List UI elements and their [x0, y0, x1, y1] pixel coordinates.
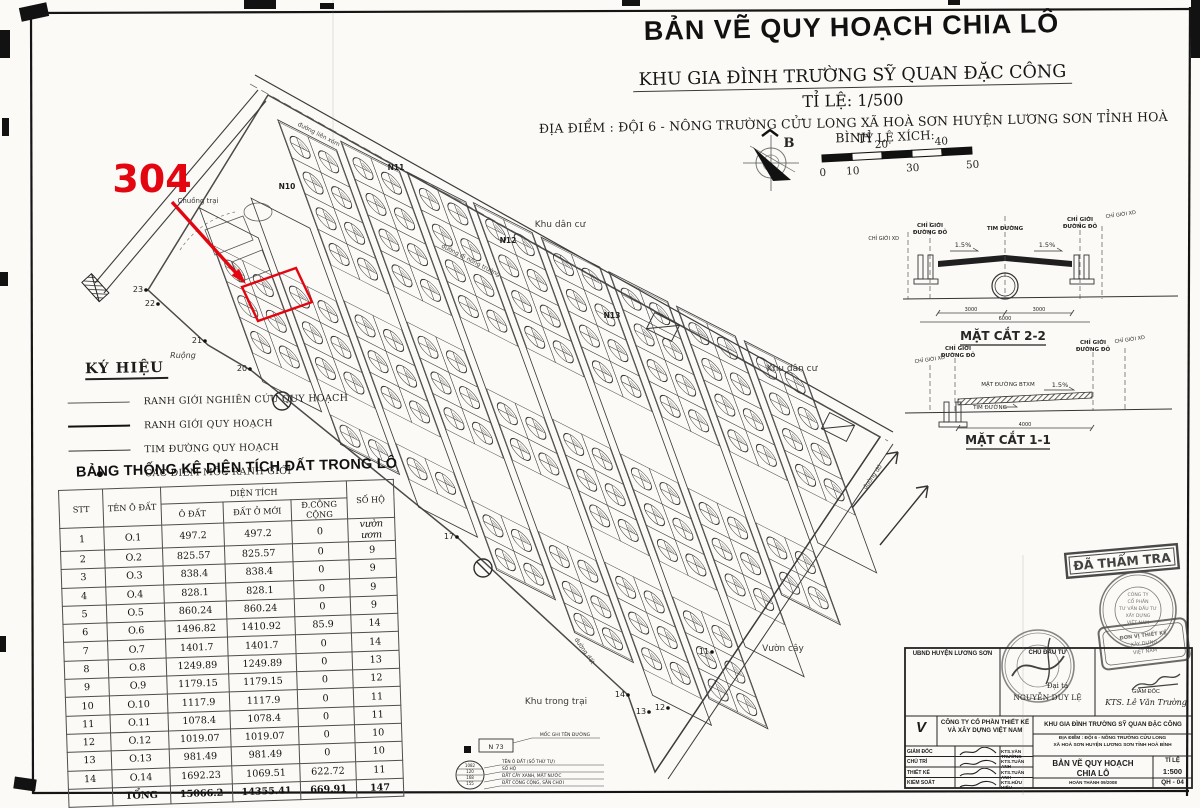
table-cell — [68, 788, 113, 808]
legend-item-label: TIM ĐƯỜNG QUY HOẠCH — [144, 441, 279, 454]
boundary-point-number: 21 — [192, 336, 202, 345]
drawing-element — [724, 402, 729, 408]
table-cell: 1401.7 — [227, 635, 296, 656]
table-cell: 981.49 — [231, 745, 300, 766]
boundary-point — [626, 693, 630, 697]
drawing-element — [505, 556, 510, 562]
drawing-element — [818, 594, 823, 600]
table-cell: 1078.4 — [230, 708, 299, 729]
table-cell: 0 — [296, 652, 353, 672]
drawing-element — [572, 589, 577, 595]
ti-le-label: TỈ LỆ — [1153, 758, 1192, 764]
table-cell: O.10 — [109, 694, 168, 714]
table-cell: 0 — [297, 688, 354, 708]
drawing-element — [339, 251, 344, 257]
drawing-element — [441, 380, 446, 386]
boundary-point-number: 14 — [615, 690, 625, 699]
table-cell: 1496.82 — [165, 619, 228, 639]
east-road — [655, 437, 880, 772]
drawing-element — [630, 383, 635, 389]
drawing-element — [735, 582, 740, 588]
table-cell: 13 — [352, 650, 400, 670]
table-cell: O.5 — [106, 603, 165, 623]
table-cell: 825.57 — [162, 546, 225, 566]
drawing-element — [300, 144, 305, 150]
map-label: TIM ĐƯỜNG — [972, 404, 1007, 411]
drawing-element — [406, 373, 411, 379]
drawing-element — [445, 480, 450, 486]
map-label: TIM ĐƯỜNG — [987, 225, 1024, 232]
scale-tick: 50 — [966, 159, 980, 172]
role-label: CHỦ TRÌ — [907, 759, 955, 765]
table-cell: 0 — [293, 560, 350, 580]
parcel-symbol-legend: N 73MỐC GHI TÊN ĐƯỜNG1082120168155TÊN Ô … — [456, 730, 604, 789]
drawing-element — [341, 194, 346, 200]
map-label: 3000 — [965, 307, 978, 313]
map-label: CHỈ GIỚI XD — [1114, 333, 1146, 345]
drawing-element — [958, 392, 1092, 405]
block-label: N10 — [279, 182, 296, 191]
investor-name: NGUYỄN DUY LỆ — [1000, 693, 1095, 702]
drawing-element — [670, 403, 675, 409]
table-cell: 5 — [62, 605, 107, 625]
director-sign-name: KTS. Lê Văn Trường — [1098, 698, 1194, 707]
drawing-element — [709, 510, 714, 516]
drawing-element — [654, 511, 659, 517]
drawing-element — [393, 337, 398, 343]
table-cell: O.8 — [108, 658, 167, 678]
boundary-point-number: 23 — [133, 285, 143, 294]
drawing-element — [521, 537, 526, 543]
drawing-element — [903, 296, 1178, 299]
drawing-element — [482, 430, 487, 436]
street-mark-desc: MỐC GHI TÊN ĐƯỜNG — [540, 730, 591, 738]
drawing-element — [680, 670, 685, 676]
scan-artifact — [948, 0, 960, 5]
col-so-ho: SỐ HỘ — [346, 479, 394, 519]
table-cell: 0 — [292, 519, 349, 544]
boundary-point-number: 12 — [655, 703, 665, 712]
symbol-desc: TÊN Ô ĐẤT (SỐ THỨ TỰ) — [501, 757, 555, 765]
symbol-value: 120 — [466, 769, 474, 774]
role-label: THIẾT KẾ — [907, 770, 955, 776]
ti-le-value: 1:500 — [1153, 767, 1192, 776]
table-cell: 12 — [67, 733, 112, 753]
table-cell: 497.2 — [162, 523, 225, 548]
drawing-element — [821, 451, 826, 457]
drawing-element — [417, 251, 422, 257]
table-cell: 0 — [294, 597, 351, 617]
drawing-element — [520, 446, 525, 452]
drawing-element — [763, 596, 768, 602]
company-name: CÔNG TY CỔ PHẦN THIẾT KẾ VÀ XÂY DỰNG VIỆ… — [939, 719, 1031, 735]
drawing-element — [805, 559, 810, 565]
drawing-element — [327, 308, 332, 314]
drawing-element — [602, 369, 607, 375]
drawing-element — [313, 180, 318, 186]
drawing-element — [363, 165, 368, 171]
drawing-element — [711, 366, 716, 372]
drawing-element — [753, 416, 758, 422]
drawing-element — [534, 334, 539, 340]
ubnd-label: UBND HUYỆN LƯƠNG SƠN — [905, 651, 1000, 657]
drawing-element — [260, 339, 265, 345]
role-label: GIÁM ĐỐC — [907, 749, 955, 755]
giam-doc-right-label: GIÁM ĐỐC — [1100, 689, 1192, 695]
drawing-element — [615, 491, 620, 497]
drawing-element — [533, 571, 538, 577]
drawing-element — [795, 379, 800, 385]
drawing-element — [493, 523, 498, 529]
table-cell: O.11 — [110, 713, 169, 733]
table-cell: 85.9 — [295, 615, 352, 635]
section-title: MẶT CẮT 2-2 — [960, 327, 1046, 343]
drawing-element — [391, 394, 396, 400]
drawing-element — [602, 456, 607, 462]
drawing-element — [389, 237, 394, 243]
drawing-element — [496, 318, 501, 324]
table-cell: 11 — [354, 705, 402, 725]
drawing-element — [641, 476, 646, 482]
role-signature — [957, 768, 999, 778]
table-cell: vườn ươm — [348, 517, 396, 542]
table-cell: 14 — [351, 613, 399, 633]
drawing-element — [483, 282, 488, 288]
drawing-element — [766, 452, 771, 458]
drawing-element — [455, 268, 460, 274]
drawing-element — [563, 349, 568, 355]
drawing-element — [535, 425, 540, 431]
block-label: N11 — [388, 163, 405, 172]
drawing-element — [391, 180, 396, 186]
drawing-element — [576, 297, 581, 303]
boundary-point — [647, 710, 651, 714]
drawing-element — [326, 215, 331, 221]
drawing-element — [589, 333, 594, 339]
table-cell: 1 — [60, 527, 105, 551]
table-cell: 1692.23 — [170, 765, 233, 785]
role-name: KTS.TUẤN ANH — [1001, 759, 1033, 769]
director-signature — [1132, 674, 1180, 690]
table-cell: 838.4 — [163, 564, 226, 584]
col-ten: TÊN Ô ĐẤT — [102, 487, 161, 527]
area-label: Khu trong trại — [525, 697, 587, 707]
col-dat-o-moi: ĐẤT Ở MỚI — [223, 500, 292, 523]
table-cell: 15066.2 — [170, 784, 233, 804]
map-label: ĐƯỜNG ĐỎ — [1076, 345, 1111, 353]
drawing-element — [417, 466, 422, 472]
drawing-element — [746, 701, 751, 707]
drawing-element — [805, 472, 810, 478]
table-cell: 622.72 — [300, 761, 357, 781]
scan-artifact — [0, 636, 6, 652]
drawing-element — [737, 525, 742, 531]
drawing-element — [905, 409, 1172, 413]
drawing-element — [750, 560, 755, 566]
drawing-element — [693, 619, 698, 625]
road-label: đường đất — [573, 637, 597, 667]
table-cell: 0 — [297, 670, 354, 690]
drawing-element — [682, 526, 687, 532]
table-cell: 1401.7 — [166, 637, 229, 657]
drawing-element — [299, 294, 304, 300]
drawing-element — [834, 487, 839, 493]
drawing-element — [469, 394, 474, 400]
block-label: N12 — [500, 236, 517, 245]
drawing-element — [456, 359, 461, 365]
drawing-element — [698, 418, 703, 424]
table-cell: 1019.07 — [231, 727, 300, 748]
table-cell: 497.2 — [224, 521, 293, 546]
drawing-element — [367, 266, 372, 272]
drawing-element — [808, 415, 813, 421]
drawing-element — [454, 415, 459, 421]
table-cell: 0 — [298, 706, 355, 726]
table-cell: 0 — [292, 542, 349, 562]
drawing-element — [600, 604, 605, 610]
scan-artifact — [0, 30, 10, 58]
boundary-point — [666, 706, 670, 710]
map-label: 1.5% — [1039, 241, 1056, 249]
drawing-element — [376, 201, 381, 207]
drawing-element — [657, 367, 662, 373]
compass-needle — [753, 147, 791, 181]
table-cell: 10 — [65, 696, 110, 716]
col-cong-cong: Đ.CÔNG CỘNG — [291, 498, 348, 521]
boundary-point-number: 13 — [636, 707, 646, 716]
table-cell: 1069.51 — [232, 763, 301, 784]
drawing-element — [354, 230, 359, 236]
drawing-element — [628, 527, 633, 533]
drawing-element — [928, 255, 933, 279]
drawing-element — [644, 332, 649, 338]
area-label: Khu dân cư — [767, 364, 819, 374]
table-cell: O.1 — [104, 525, 163, 550]
map-label: CHỈ GIỚI — [1080, 338, 1106, 346]
role-name: KTS.TUẤN ANH — [1001, 770, 1033, 780]
drawing-element — [524, 241, 529, 247]
table-cell: 14 — [351, 632, 399, 652]
annotation-plot-number: 304 — [112, 157, 191, 201]
table-cell: O.2 — [105, 548, 164, 568]
drawing-element — [672, 346, 677, 352]
boundary-point — [144, 288, 148, 292]
map-label: ĐƯỜNG ĐỎ — [1063, 222, 1098, 230]
drawing-element — [464, 746, 471, 753]
drawing-element — [882, 150, 912, 159]
map-label: 3000 — [1033, 307, 1046, 313]
drawing-element — [402, 273, 407, 279]
drawing-element — [779, 401, 784, 407]
table-cell: O.9 — [109, 676, 168, 696]
table-cell: 838.4 — [225, 562, 294, 583]
table-cell: O.13 — [111, 749, 170, 769]
table-cell: 10 — [354, 723, 402, 743]
culvert-symbol — [82, 274, 109, 302]
table-cell: 14355.41 — [232, 781, 301, 802]
table-cell: 0 — [299, 743, 356, 763]
drawing-element — [638, 620, 643, 626]
table-cell: O.3 — [105, 566, 164, 586]
drawing-element — [573, 441, 578, 447]
boundary-point-number: 17 — [444, 532, 454, 541]
role-signature — [957, 758, 999, 768]
col-stt: STT — [59, 489, 104, 528]
dai-ta-label: Đại tá — [1010, 682, 1105, 690]
fold-line — [332, 0, 334, 150]
drawing-element — [587, 568, 592, 574]
table-cell: 1410.92 — [227, 617, 296, 638]
symbol-value: 1082 — [465, 763, 476, 768]
section-2-2: CHỈ GIỚIĐƯỜNG ĐỎTIM ĐƯỜNGCHỈ GIỚIĐƯỜNG Đ… — [868, 208, 1178, 345]
scan-artifact — [320, 3, 334, 9]
map-label: 1.5% — [1052, 381, 1069, 389]
legend-heading: KÝ HIỆU — [85, 359, 168, 380]
drawing-element — [617, 347, 622, 353]
table-cell: 9 — [350, 595, 398, 615]
sheet-number: QH - 04 — [1153, 779, 1192, 786]
dia-diem-line2: XÃ HOÀ SƠN HUYỆN LƯƠNG SƠN TỈNH HOÀ BÌNH — [1033, 743, 1192, 748]
drawing-element — [1084, 255, 1089, 279]
drawing-element — [685, 382, 690, 388]
table-cell: 8 — [64, 660, 109, 680]
map-label: 1.5% — [955, 241, 972, 249]
sheet-frame — [1187, 7, 1190, 796]
table-cell: 1249.89 — [228, 653, 297, 674]
table-cell: 1249.89 — [166, 656, 229, 676]
section-1-1: CHỈ GIỚI XDCHỈ GIỚIĐƯỜNG ĐỎCHỈ GIỚIĐƯỜNG… — [905, 333, 1172, 449]
table-cell: 1078.4 — [168, 711, 231, 731]
scan-artifact — [622, 0, 640, 6]
drawing-element — [822, 153, 852, 162]
drawing-element — [737, 438, 742, 444]
table-cell: O.6 — [107, 621, 166, 641]
boundary-point — [156, 302, 160, 306]
drawing-element — [470, 246, 475, 252]
drawing-element — [429, 196, 434, 202]
round-stamp-text: CỔ PHẦN — [1127, 597, 1148, 605]
round-stamp-text: XÂY DỰNG — [1126, 612, 1151, 619]
boundary-point — [203, 339, 207, 343]
table-cell: 9 — [350, 577, 398, 597]
completed-label: HOÀN THÀNH 09/2008 — [1033, 780, 1153, 785]
table-cell: 11 — [356, 760, 404, 780]
hatch-marker — [646, 313, 679, 342]
drawing-element — [667, 547, 672, 553]
drawing-element — [378, 358, 383, 364]
drawing-element — [263, 282, 268, 288]
legend-item-label: RANH GIỚI QUY HOẠCH — [144, 418, 273, 431]
drawing-element — [669, 490, 674, 496]
verified-stamp: ĐÃ THẨM TRA — [1065, 544, 1179, 578]
scan-artifact — [244, 0, 276, 9]
block-label: N13 — [604, 311, 621, 320]
company-logo: V — [905, 719, 937, 736]
drawing-element — [457, 211, 462, 217]
drawing-element — [625, 584, 630, 590]
role-label: KIỂM SOÁT — [907, 780, 955, 786]
sheet-header: BẢN VẼ QUY HOẠCH CHIA LÔ KHU GIA ĐÌNH TR… — [519, 6, 1186, 152]
map-label: CHỈ GIỚI XD — [868, 234, 899, 242]
drawing-element — [612, 636, 617, 642]
map-label: CHỈ GIỚI XD — [1105, 208, 1137, 220]
drawing-element — [727, 345, 732, 351]
table-cell: 1179.15 — [229, 672, 298, 693]
scale-tick: 10 — [846, 165, 860, 178]
drawing-element — [740, 381, 745, 387]
scan-artifact — [0, 272, 8, 286]
section-title: MẶT CẮT 1-1 — [965, 431, 1051, 447]
chu-dau-tu-label: CHỦ ĐẦU TƯ — [1000, 650, 1095, 656]
drawing-element — [734, 669, 739, 675]
table-cell: 981.49 — [169, 747, 232, 767]
table-cell: 2 — [61, 550, 106, 570]
drawing-element — [776, 545, 781, 551]
road-label: đường liên xóm — [296, 121, 341, 148]
table-cell: 0 — [298, 725, 355, 745]
drawing-element — [583, 621, 588, 627]
table-cell: O.12 — [111, 731, 170, 751]
symbol-value: 168 — [466, 775, 474, 780]
line-thin-symbol — [68, 401, 130, 403]
scan-artifact — [1191, 0, 1200, 58]
drawing-element — [430, 287, 435, 293]
investor-signature — [1012, 656, 1064, 676]
road-arrow — [880, 486, 928, 545]
project-name: KHU GIA ĐÌNH TRƯỜNG SỸ QUAN ĐẶC CÔNG — [1035, 721, 1191, 728]
table-cell: 669.91 — [300, 780, 357, 800]
boundary-point-number: 22 — [145, 299, 155, 308]
drawing-element — [477, 562, 489, 574]
drawing-element — [559, 553, 564, 559]
drawing-element — [1046, 638, 1050, 684]
table-cell: 14 — [68, 769, 113, 789]
drawing-element — [365, 323, 370, 329]
drawing-title-block-2: CHIA LÔ — [1033, 769, 1153, 778]
drawing-element — [792, 436, 797, 442]
drawing-element — [328, 159, 333, 165]
table-cell: 6 — [63, 623, 108, 643]
scale-tick: 30 — [906, 162, 920, 175]
drawing-element — [651, 656, 656, 662]
table-cell: 825.57 — [224, 544, 293, 565]
boundary-point-number: 11 — [699, 647, 709, 656]
table-cell: 1019.07 — [169, 729, 232, 749]
road-label: đường đi nông trường — [440, 243, 501, 279]
role-name: KTS.HỮU HIẾU — [1001, 780, 1033, 790]
map-label: CHỈ GIỚI — [1067, 215, 1093, 223]
table-cell: 1117.9 — [167, 692, 230, 712]
table-cell: 9 — [349, 559, 397, 579]
role-name: KTS.VĂN TRƯỜNG — [1001, 749, 1033, 759]
table-cell: 3 — [61, 568, 106, 588]
map-label: CHỈ GIỚI — [917, 221, 943, 229]
drawing-element — [276, 318, 281, 324]
drawing-element — [914, 279, 938, 284]
street-mark-label: N 73 — [488, 743, 503, 751]
table-cell: O.7 — [108, 640, 167, 660]
road-label: đường đỏ — [862, 463, 884, 490]
table-cell: 4 — [62, 587, 107, 607]
map-label: 4000 — [1019, 422, 1032, 428]
drawing-element — [721, 633, 726, 639]
drawing-element — [548, 461, 553, 467]
round-stamp-text: CÔNG TY — [1128, 591, 1149, 598]
drawing-element — [404, 216, 409, 222]
role-signature — [957, 779, 999, 789]
table-cell: 13 — [67, 751, 112, 771]
drawing-element — [789, 580, 794, 586]
